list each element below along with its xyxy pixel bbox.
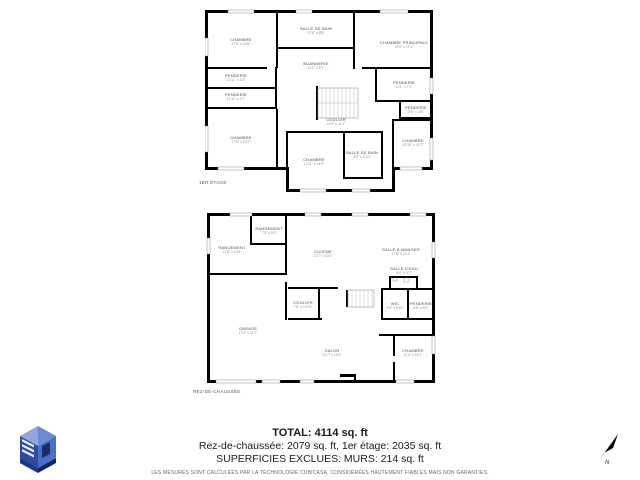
brand-logo-icon [16,424,60,476]
room-label: PENDERIE11'1" x 7'1" [393,80,415,90]
room-label: CHAMBRE PRINCIPALE19'9" x 17'1" [380,40,428,50]
disclaimer-text: LES MESURES SONT CALCULÉES PAR LA TECHNO… [0,470,640,476]
room-label: PENDERIE6'5" x 6'9" [410,301,432,311]
room-label: CUISINE17'7" x 13'3" [313,249,332,259]
total-area-text: TOTAL: 4114 sq. ft [0,427,640,439]
stairs-icon [348,290,374,307]
room-label: SALLE DE BAIN17'6" x 8'8" [300,26,332,36]
room-label: RANGEMENT7'5" x 5'0" [255,226,282,236]
north-arrow-icon [596,432,628,460]
floor-areas-text: Rez-de-chaussée: 2079 sq. ft, 1er étage:… [0,440,640,452]
room-label: RANGEMENT11'8" x 13'9" [218,245,245,255]
windows [207,213,435,383]
room-label: CHAMBRE13'10" x 11'7" [402,138,423,148]
floor-label-upper: 1ER ÉTAGE [199,180,227,185]
room-label: SALLE À MANGER17'8" x 12'1" [382,247,420,257]
room-label: CHAMBRE17'6" x 14'8" [230,37,251,47]
floor-plan-lower [205,212,437,386]
room-label: PENDERIE11'11" x 3'7" [225,92,247,102]
floor-label-lower: REZ-DE-CHAUSSÉE [193,389,241,394]
room-label: GARAGE17'4" x 21'7" [238,326,257,336]
room-label: CHAMBRE11'2" x 14'7" [402,348,423,358]
room-label: CHAMBRE17'6" x 14'7" [230,135,251,145]
room-label: WIC7'0" x 5'10" [386,301,403,311]
north-arrow: N [596,432,628,472]
room-label: BUANDERIE11'2" x 8'1" [303,61,328,71]
room-label: COULOIR24'9" x 11'1" [326,117,346,127]
room-label: PENDERIE8'5" x 3'8" [405,105,427,115]
area-summary: TOTAL: 4114 sq. ft Rez-de-chaussée: 2079… [0,427,640,476]
excluded-areas-text: SUPERFICIES EXCLUES: MURS: 214 sq. ft [0,453,640,465]
room-label: SALLE D'EAU6'4" x 3'7" [390,266,418,276]
interior-walls [207,216,433,382]
room-label: COULOIR7'6" x 14'10" [293,300,313,310]
room-label: SALLE DE BAIN8'9" x 5'10" [346,150,378,160]
stairs-icon [318,88,358,118]
floorplan-page: CHAMBRE17'6" x 14'8" SALLE DE BAIN17'6" … [0,0,640,480]
room-label: CHAMBRE11'11" x 14'9" [303,157,324,167]
north-label: N [605,460,609,466]
room-label: PENDERIE11'11" x 3'3" [225,73,247,83]
room-label: SALON22'7" x 15'9" [322,348,341,358]
outer-walls [207,213,435,383]
bath-fixtures-icon [393,278,409,282]
